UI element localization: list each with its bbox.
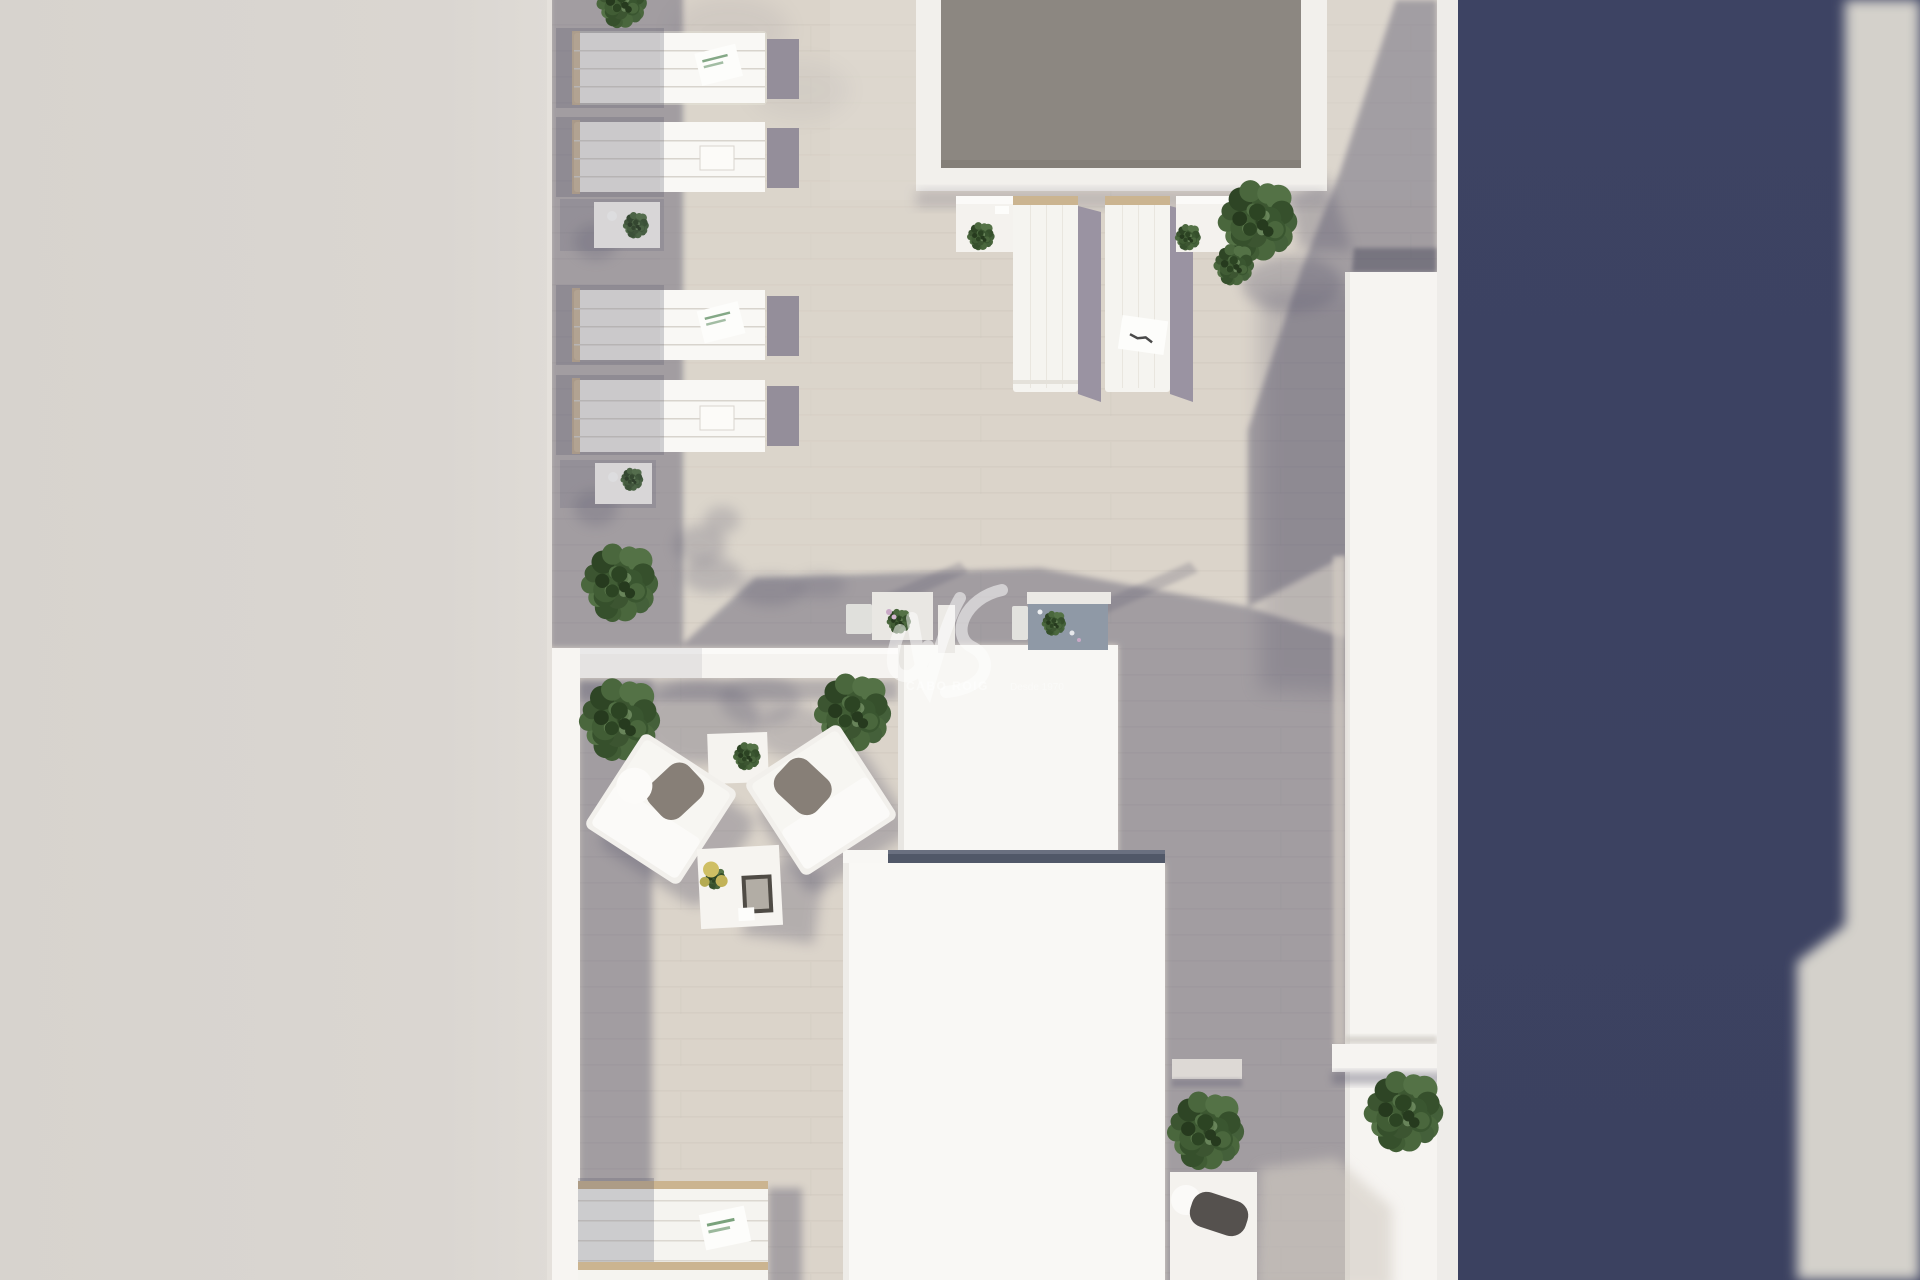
svg-text:Desde 1970: Desde 1970 <box>1010 682 1064 693</box>
svg-text:CABO ROIG: CABO ROIG <box>906 679 989 693</box>
